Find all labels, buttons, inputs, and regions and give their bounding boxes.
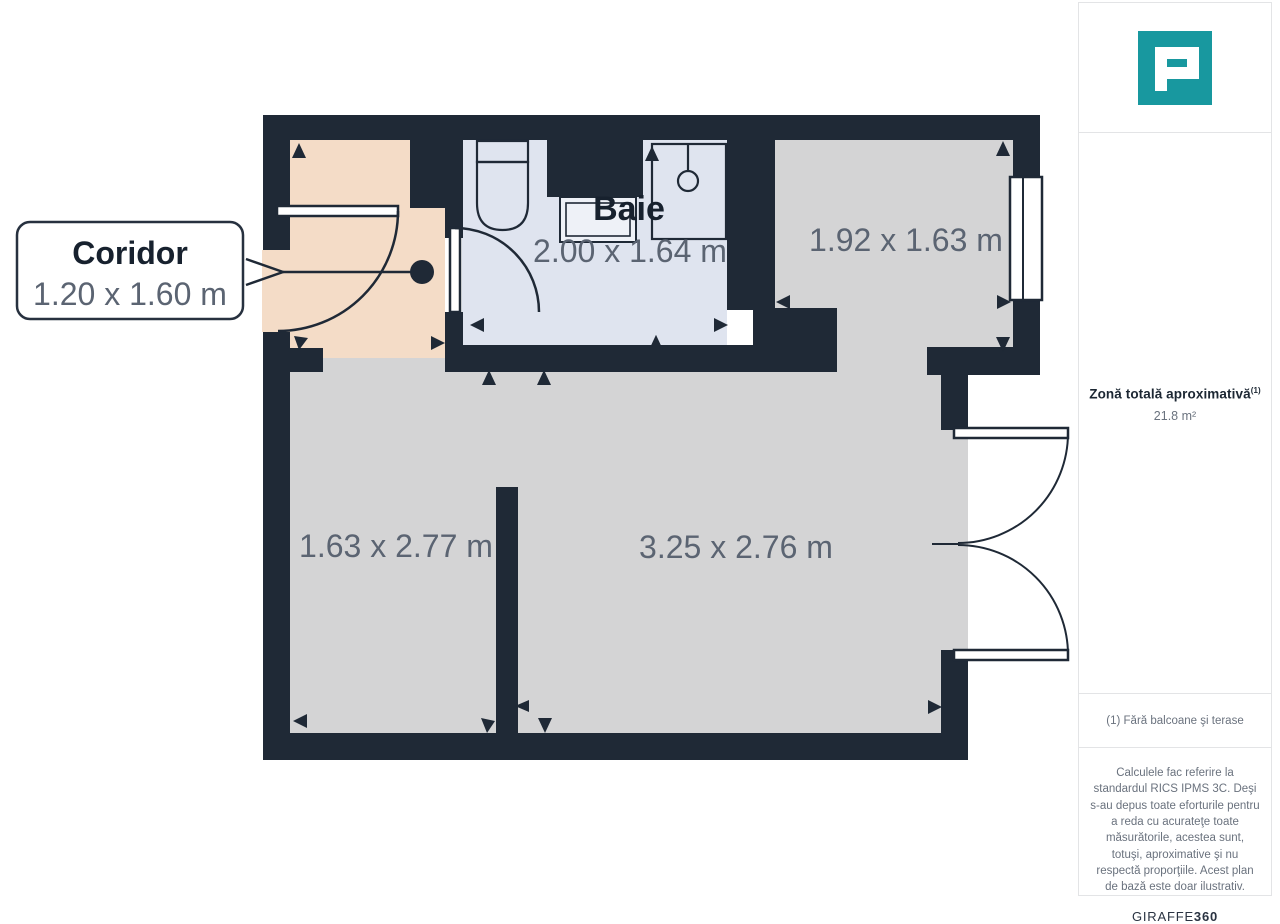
brand-number: 360: [1194, 909, 1218, 924]
top-right-room-dims: 1.92 x 1.63 m: [809, 222, 1003, 258]
floor-plan: Coridor 1.20 x 1.60 m Baie 2.00 x 1.64 m…: [0, 0, 1080, 906]
total-area-title: Zonă totală aproximativă(1): [1079, 386, 1271, 402]
disclaimer-text: Calculele fac referire la standardul RIC…: [1090, 765, 1260, 896]
total-area-title-text: Zonă totală aproximativă: [1089, 387, 1250, 402]
info-sidebar: Zonă totală aproximativă(1) 21.8 m² (1) …: [1078, 2, 1272, 896]
brand-logo-icon: [1138, 31, 1212, 105]
baie-label: Baie: [593, 190, 665, 228]
logo-section: [1079, 3, 1271, 133]
disclaimer-section: Calculele fac referire la standardul RIC…: [1079, 747, 1271, 895]
door-bay-floor: [941, 430, 968, 652]
brand-name: GIRAFFE: [1132, 909, 1194, 924]
footnote-text: (1) Fără balcoane şi terase: [1106, 715, 1243, 727]
corridor-callout: Coridor 1.20 x 1.60 m: [17, 222, 243, 319]
main-room-dims: 3.25 x 2.76 m: [639, 529, 833, 565]
total-area-section: Zonă totală aproximativă(1) 21.8 m²: [1079, 133, 1271, 693]
footnote-section: (1) Fără balcoane şi terase: [1079, 693, 1271, 747]
total-area-value: 21.8 m²: [1079, 409, 1271, 423]
window: [1010, 177, 1042, 300]
brand-wordmark: GIRAFFE360: [1090, 909, 1260, 924]
total-area-superscript: (1): [1251, 386, 1261, 395]
left-room-dims: 1.63 x 2.77 m: [299, 528, 493, 564]
corridor-callout-dims: 1.20 x 1.60 m: [33, 276, 227, 312]
baie-dims: 2.00 x 1.64 m: [533, 233, 727, 269]
passage-floor: [837, 350, 927, 375]
corridor-callout-title: Coridor: [72, 235, 188, 271]
corridor-entry-opening: [262, 250, 288, 332]
